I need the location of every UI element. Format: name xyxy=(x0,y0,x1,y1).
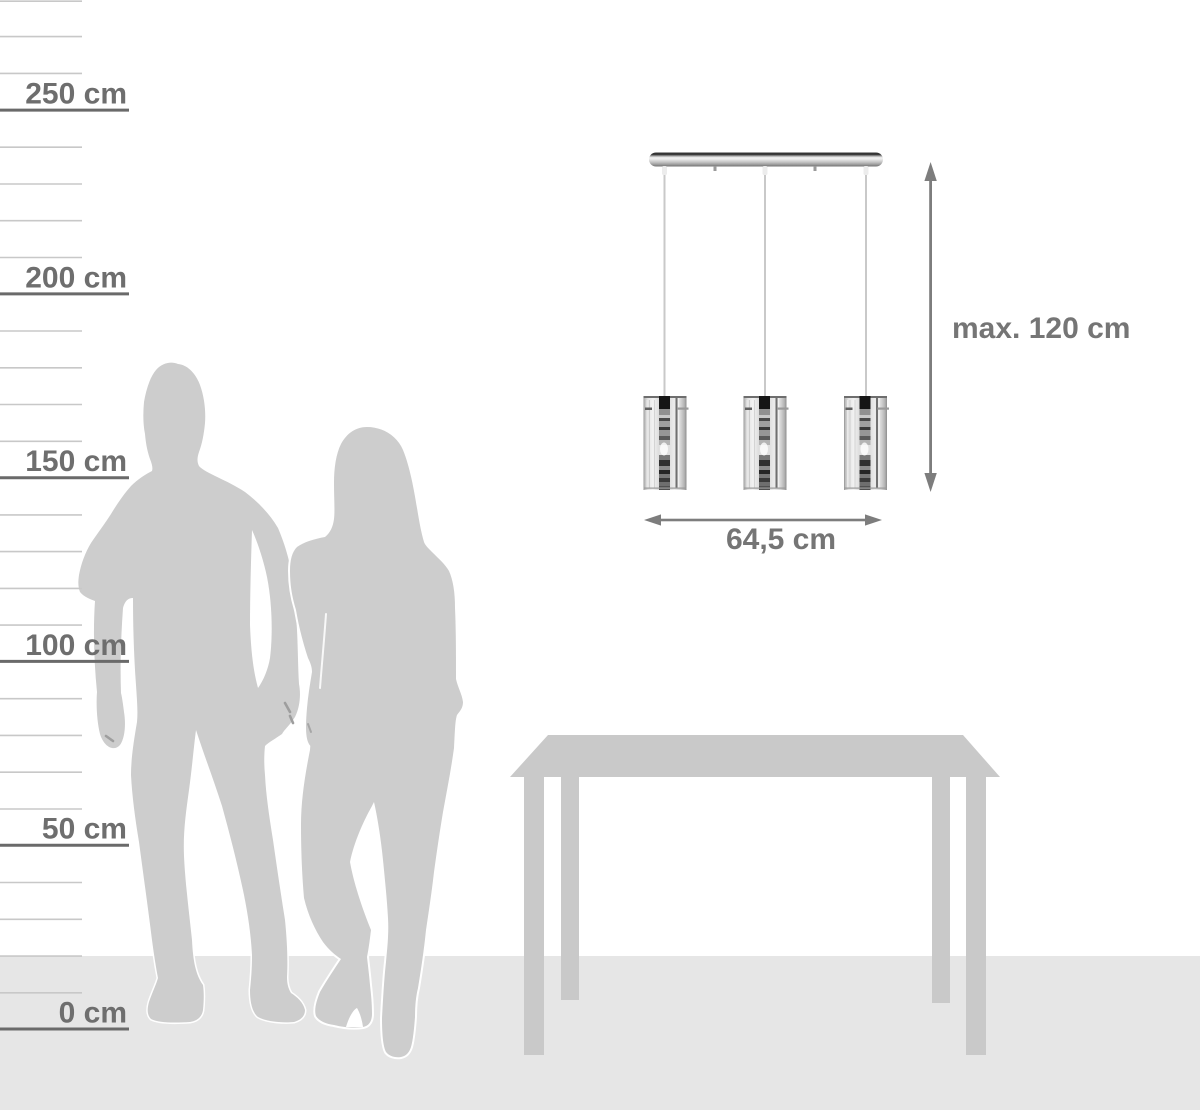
svg-text:200 cm: 200 cm xyxy=(25,261,127,294)
svg-text:250 cm: 250 cm xyxy=(25,78,127,111)
svg-text:0 cm: 0 cm xyxy=(59,997,127,1030)
svg-text:150 cm: 150 cm xyxy=(25,445,127,478)
svg-text:64,5 cm: 64,5 cm xyxy=(726,523,836,556)
svg-text:50 cm: 50 cm xyxy=(42,813,127,846)
svg-text:100 cm: 100 cm xyxy=(25,629,127,662)
svg-text:max. 120 cm: max. 120 cm xyxy=(952,312,1130,345)
